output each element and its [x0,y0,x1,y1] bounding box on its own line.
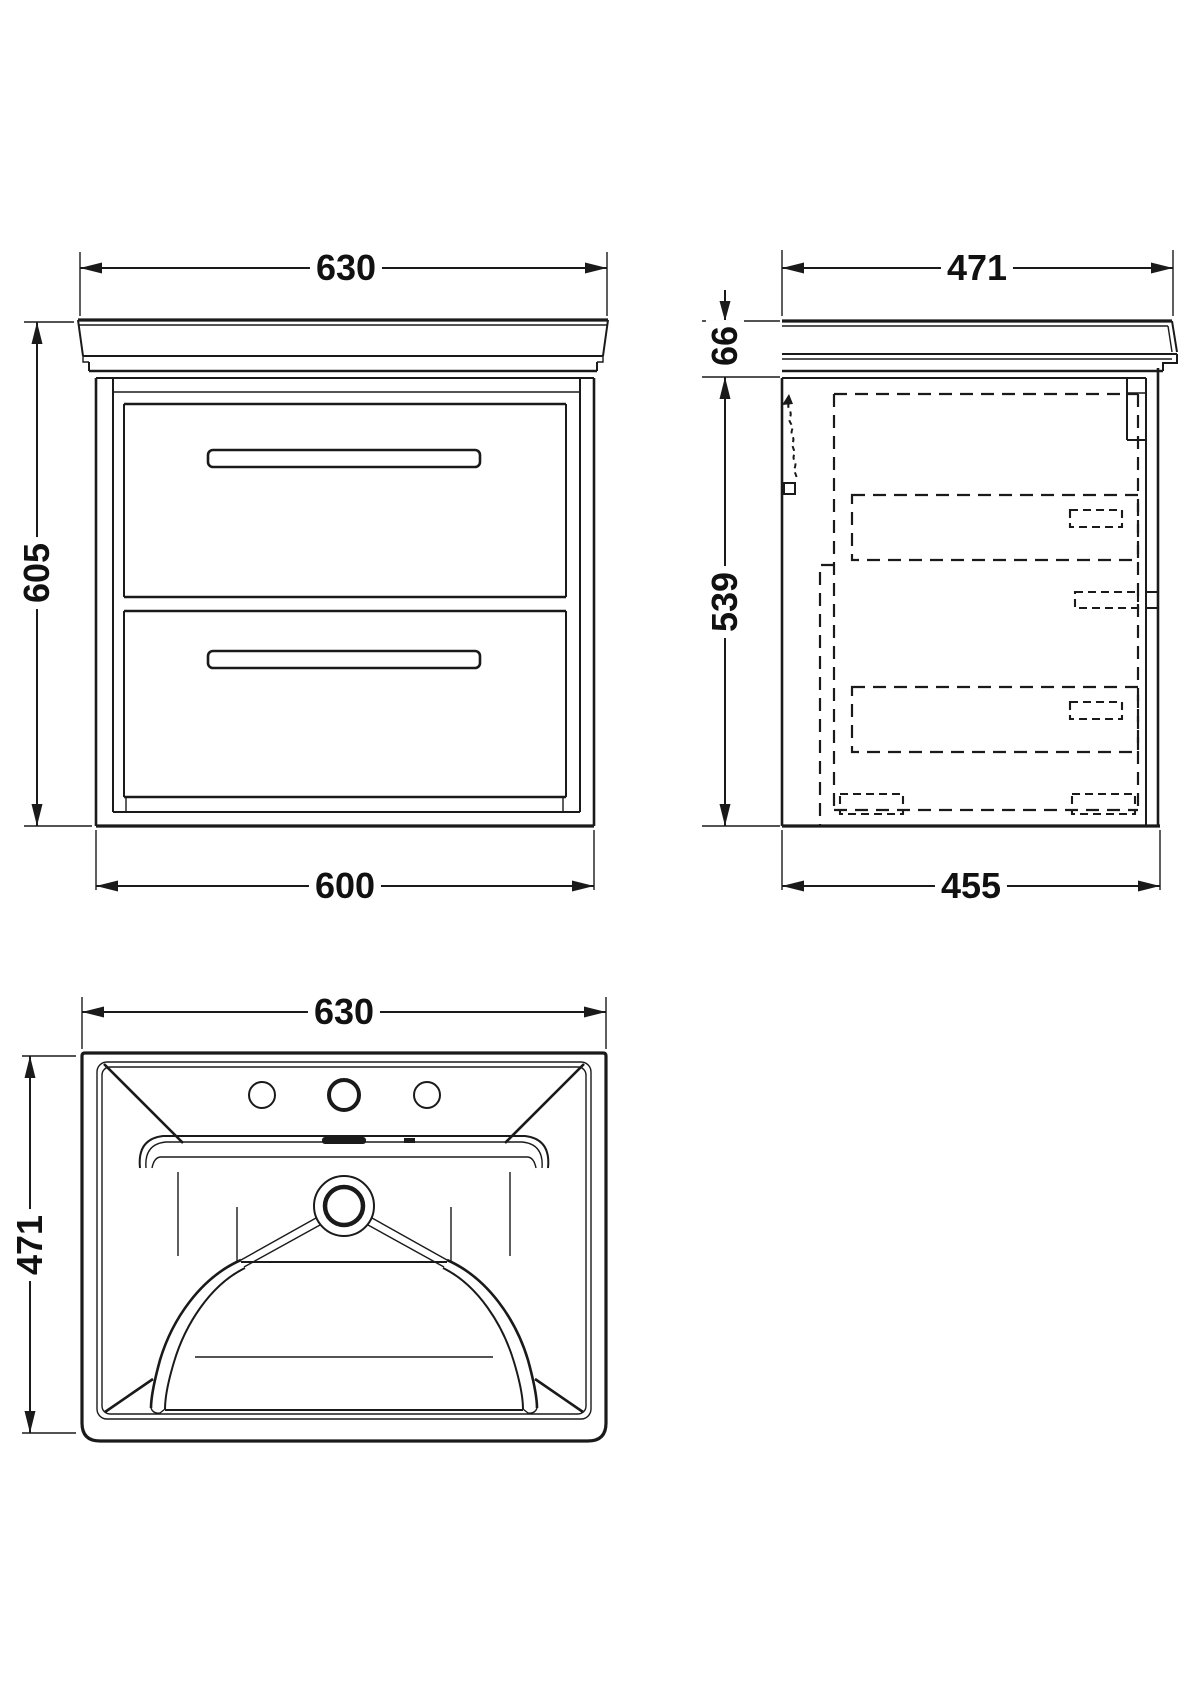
plan-tap-holes [249,1080,440,1110]
side-wall-bracket [782,394,796,494]
runner-block-dashed [1072,794,1135,814]
tap-hole-center [329,1080,359,1110]
front-drawer-top [124,404,566,597]
plan-basin-bowl [151,1172,537,1413]
front-height-label: 605 [18,537,56,609]
technical-drawing-svg [0,0,1200,1698]
overflow-hole-inner [325,1187,363,1225]
tap-hole-right [414,1082,440,1108]
side-cabinet-height-label: 539 [706,566,744,638]
drawer-handle-dashed [1075,592,1138,608]
side-counter-height-label: 66 [706,320,744,372]
drawer-handle-dashed [1070,510,1122,527]
front-countertop [78,320,608,371]
front-cabinet [96,378,594,826]
front-drawer-bottom [124,611,566,812]
side-countertop [782,321,1177,371]
front-width-bottom-label: 600 [309,867,381,905]
side-depth-top-label: 471 [941,249,1013,287]
tap-hole-left [249,1082,275,1108]
drawer-handle-dashed [1070,702,1122,719]
side-view [702,250,1177,892]
runner-block-dashed [840,794,903,814]
drawer-handle [208,651,480,668]
front-view [24,252,608,892]
side-cabinet [782,368,1160,826]
plan-basin-ledge [140,1136,549,1168]
overflow-slot [322,1137,366,1144]
plan-depth-label: 471 [11,1209,49,1281]
drawer-handle [208,450,480,467]
plan-view [22,997,606,1441]
plan-width-label: 630 [308,993,380,1031]
technical-drawing-page: 630 605 600 471 66 539 455 630 471 [0,0,1200,1698]
side-depth-bottom-label: 455 [935,867,1007,905]
front-width-top-label: 630 [310,249,382,287]
side-cabinet-internals [820,394,1138,826]
